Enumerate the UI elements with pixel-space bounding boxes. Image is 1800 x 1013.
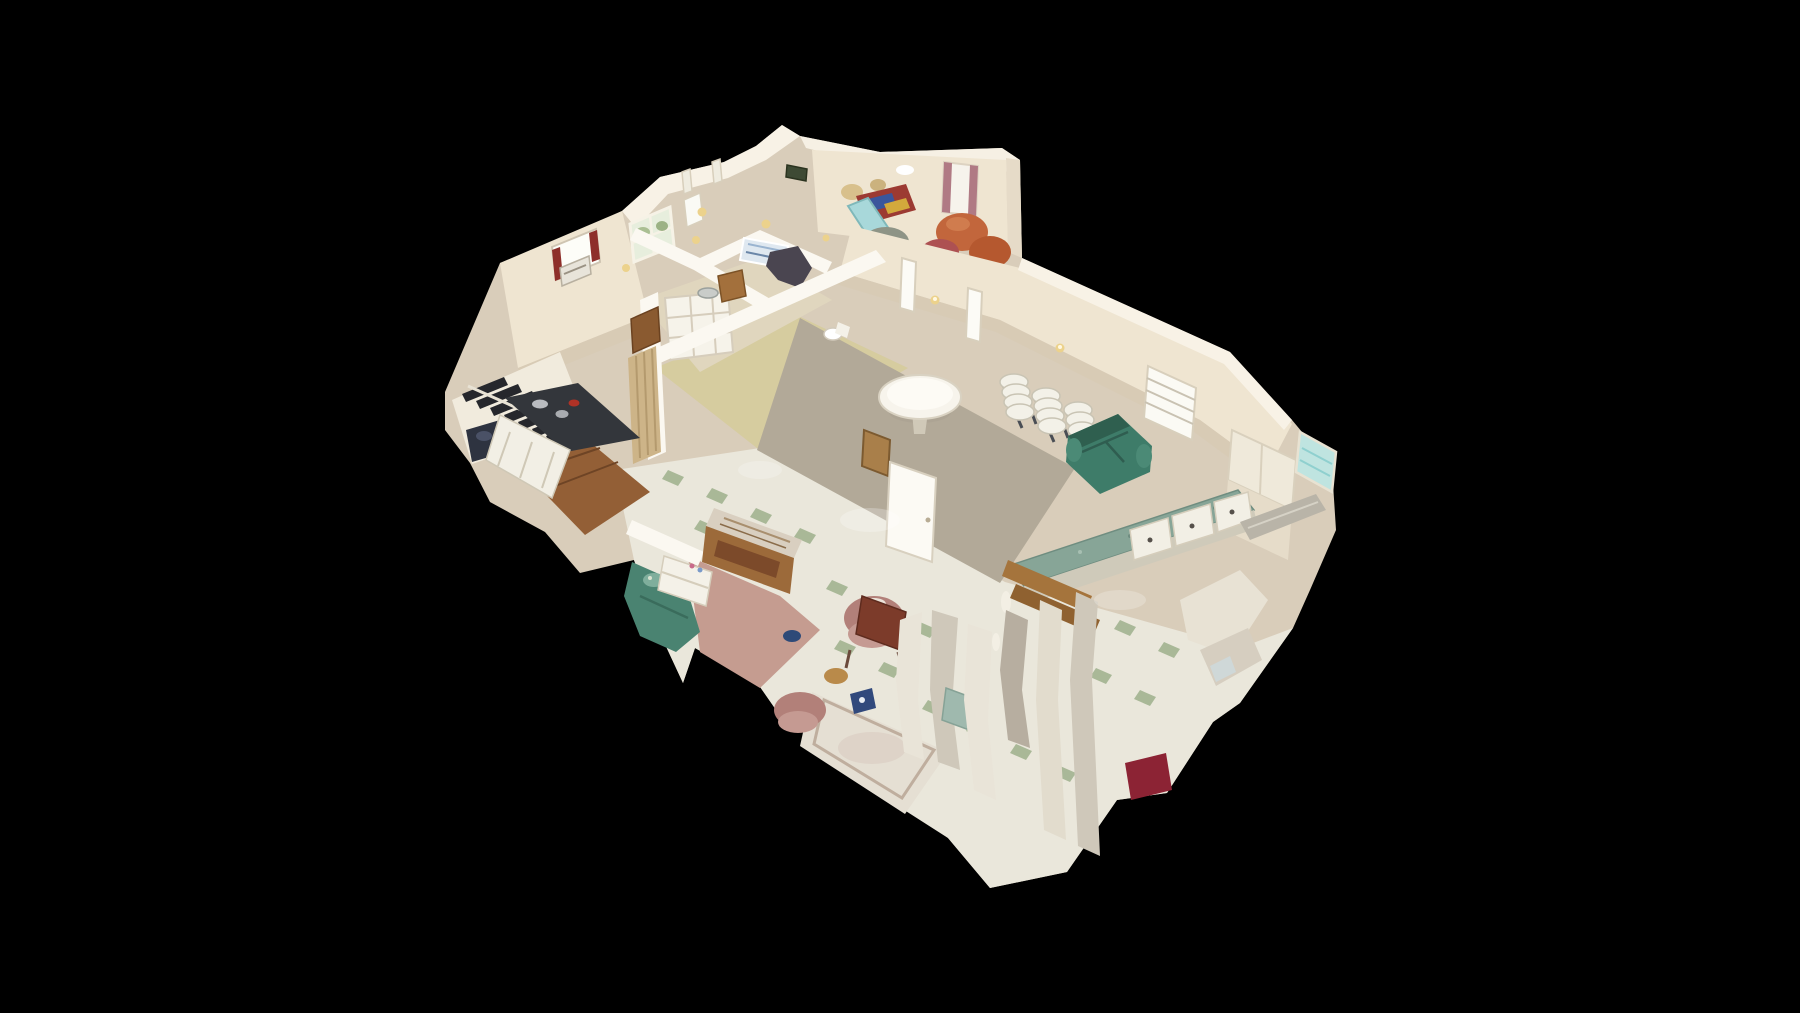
tour-viewport[interactable] (0, 0, 1800, 1013)
sconce-core (1058, 345, 1062, 349)
slim-window (966, 288, 982, 342)
pillow-dot (648, 576, 652, 580)
white-statue (1001, 591, 1011, 613)
red-pot (569, 400, 580, 407)
drawer-pull (1190, 524, 1195, 529)
sconce-light (698, 208, 707, 217)
sink (698, 288, 718, 298)
floor-reflection (840, 508, 900, 532)
tree-foliage (656, 221, 668, 231)
rug-pattern (838, 732, 906, 764)
table-top-highlight (887, 378, 953, 410)
nightstand-item (690, 564, 695, 569)
floor-reflection (1094, 590, 1146, 610)
ceiling-light (896, 165, 914, 175)
north-wall-slit-window (712, 159, 722, 184)
north-wall-slit-window (682, 169, 692, 194)
crate-label (859, 697, 865, 703)
lampshade (870, 179, 886, 191)
recliner-highlight (946, 217, 970, 231)
folding-chair (1006, 404, 1034, 420)
sconce-core (933, 297, 937, 301)
floor-reflection (738, 461, 782, 479)
slim-window (900, 258, 916, 312)
bag-highlight (476, 431, 492, 441)
dollhouse-model[interactable] (0, 0, 1800, 1013)
open-white-door (886, 462, 936, 562)
steel-pot (532, 400, 548, 409)
drawer-pull (1148, 538, 1153, 543)
blue-object (783, 630, 801, 642)
loveseat-arm (1066, 438, 1082, 462)
counter-speckle (1078, 550, 1082, 554)
sconce-light (622, 264, 630, 272)
loveseat-arm (1136, 444, 1152, 468)
white-statue (992, 633, 1000, 651)
high-chair (718, 270, 746, 302)
drawer-pull (1230, 510, 1235, 515)
folding-chair (1038, 418, 1066, 434)
steel-pot (556, 410, 569, 418)
sconce-light (823, 235, 830, 242)
sconce-light (692, 236, 700, 244)
sconce-light (762, 220, 771, 229)
amber-fragment (824, 668, 848, 684)
storage-right-wall (1006, 158, 1022, 258)
door-knob (926, 518, 931, 523)
nightstand-item (698, 568, 703, 573)
armchair-seat (778, 711, 818, 733)
